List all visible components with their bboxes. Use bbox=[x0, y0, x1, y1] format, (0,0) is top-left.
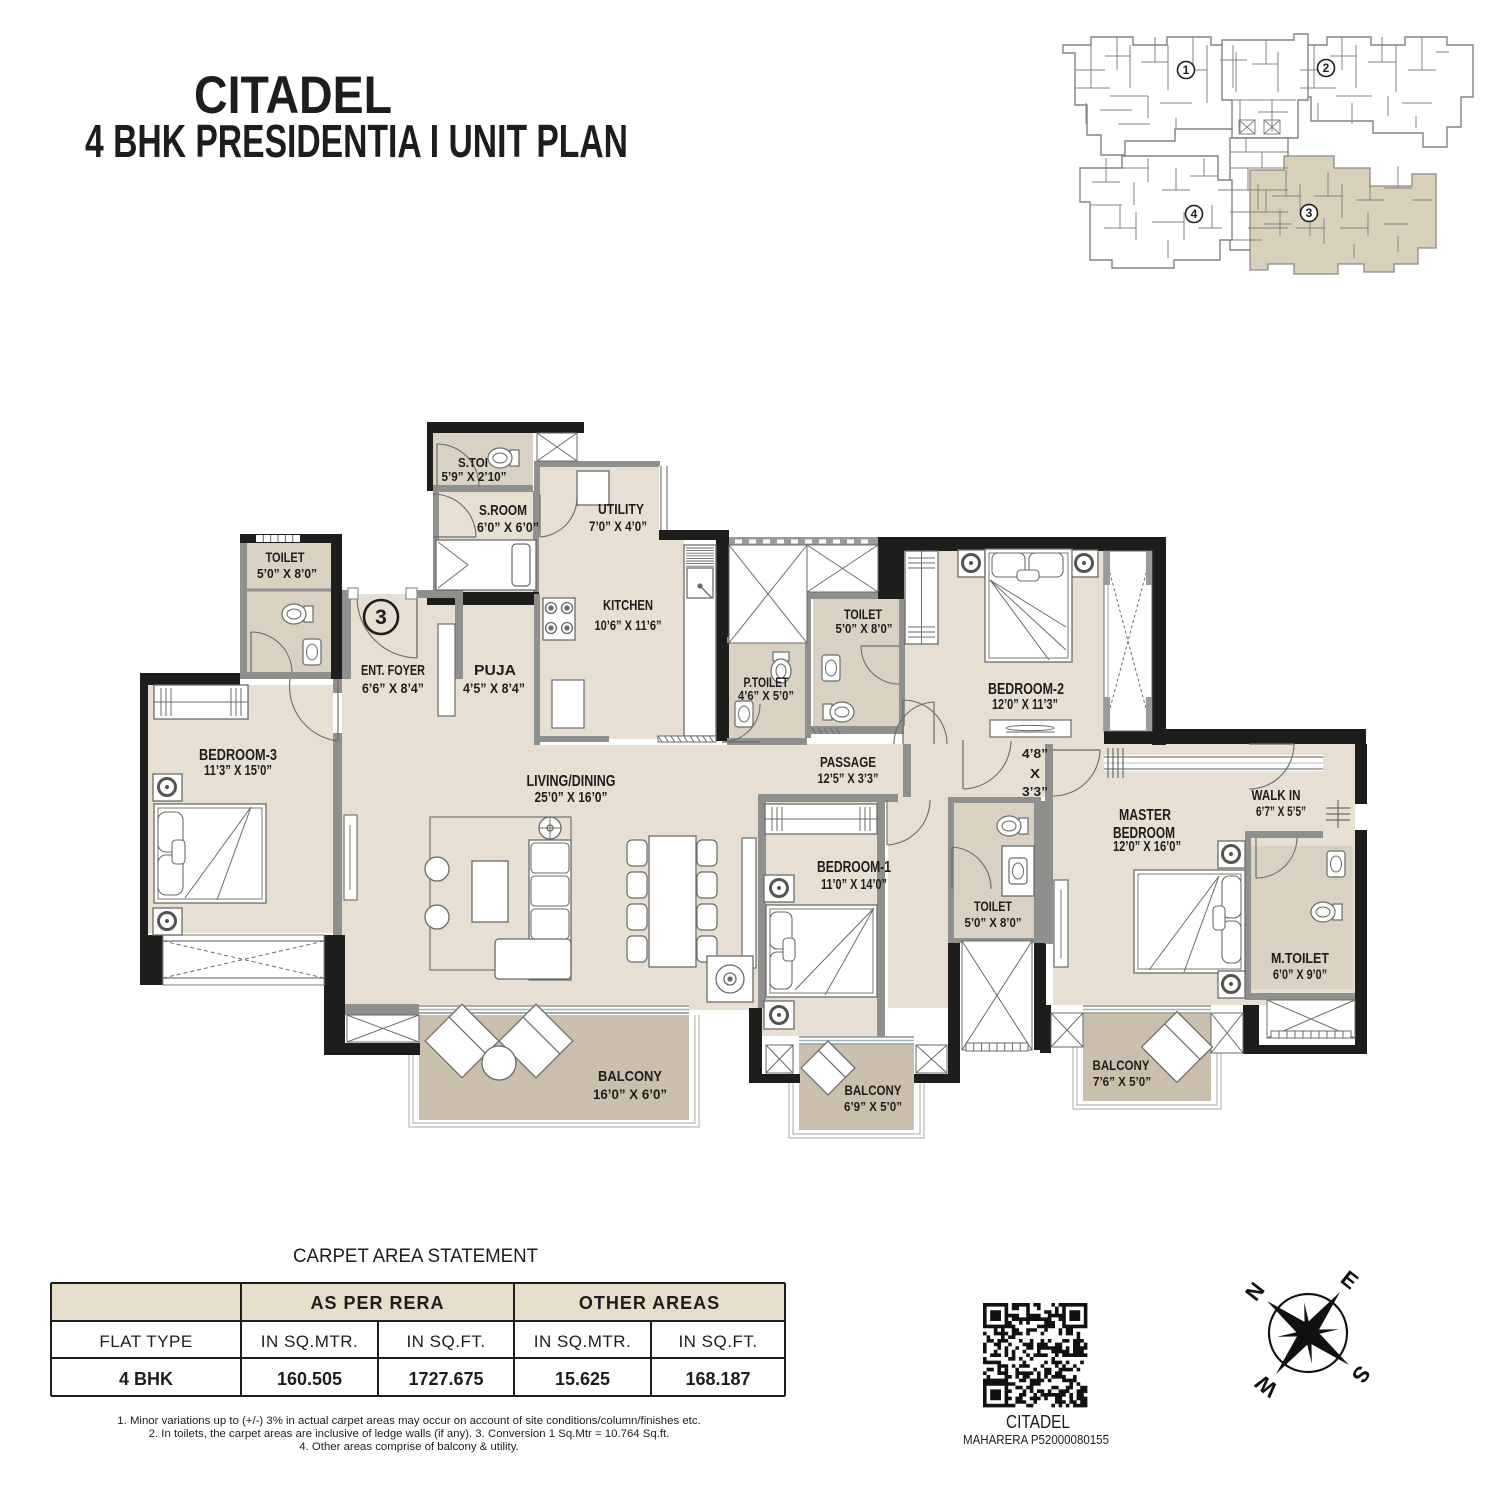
svg-text:5’0” X 8’0”: 5’0” X 8’0” bbox=[836, 622, 893, 636]
svg-text:FLAT TYPE: FLAT TYPE bbox=[99, 1332, 192, 1351]
svg-text:BALCONY: BALCONY bbox=[598, 1068, 662, 1085]
svg-text:4’8”: 4’8” bbox=[1022, 747, 1048, 761]
svg-text:CARPET AREA STATEMENT: CARPET AREA STATEMENT bbox=[293, 1246, 538, 1267]
svg-text:BEDROOM-3: BEDROOM-3 bbox=[199, 747, 277, 764]
svg-text:4. Other areas comprise of bal: 4. Other areas comprise of balcony & uti… bbox=[299, 1441, 518, 1453]
svg-text:UTILITY: UTILITY bbox=[598, 501, 644, 518]
svg-text:4’6” X 5’0”: 4’6” X 5’0” bbox=[738, 689, 794, 703]
svg-text:X: X bbox=[1030, 767, 1041, 781]
svg-text:AS PER RERA: AS PER RERA bbox=[310, 1293, 444, 1313]
svg-text:OTHER AREAS: OTHER AREAS bbox=[579, 1293, 720, 1313]
svg-text:4 BHK: 4 BHK bbox=[119, 1369, 173, 1389]
svg-text:PUJA: PUJA bbox=[474, 663, 517, 679]
svg-text:BALCONY: BALCONY bbox=[1093, 1057, 1151, 1073]
svg-text:12’0” X 16’0”: 12’0” X 16’0” bbox=[1113, 839, 1181, 855]
svg-text:6’7” X 5’5”: 6’7” X 5’5” bbox=[1256, 804, 1306, 819]
svg-text:1: 1 bbox=[1183, 63, 1190, 77]
svg-text:5’0” X 8’0”: 5’0” X 8’0” bbox=[965, 916, 1022, 930]
svg-text:CITADEL: CITADEL bbox=[1006, 1412, 1070, 1432]
svg-text:6’6” X 8’4”: 6’6” X 8’4” bbox=[362, 681, 424, 696]
svg-text:4: 4 bbox=[1191, 207, 1198, 221]
svg-text:TOILET: TOILET bbox=[844, 607, 883, 622]
svg-text:BEDROOM-1: BEDROOM-1 bbox=[817, 859, 891, 876]
svg-text:16’0” X 6’0”: 16’0” X 6’0” bbox=[593, 1086, 667, 1102]
svg-text:3: 3 bbox=[1306, 206, 1313, 220]
svg-text:ENT. FOYER: ENT. FOYER bbox=[361, 663, 425, 679]
svg-text:3’3”: 3’3” bbox=[1022, 785, 1048, 799]
svg-text:KITCHEN: KITCHEN bbox=[603, 597, 653, 614]
svg-text:11’3” X 15’0”: 11’3” X 15’0” bbox=[204, 763, 272, 779]
svg-text:7’0” X 4’0”: 7’0” X 4’0” bbox=[589, 518, 647, 534]
svg-text:S.ROOM: S.ROOM bbox=[479, 502, 527, 519]
svg-text:2: 2 bbox=[1323, 61, 1330, 75]
svg-text:WALK IN: WALK IN bbox=[1252, 788, 1301, 804]
svg-text:6’0” X 9’0”: 6’0” X 9’0” bbox=[1273, 967, 1327, 982]
svg-text:PASSAGE: PASSAGE bbox=[820, 755, 876, 771]
svg-text:15.625: 15.625 bbox=[555, 1369, 610, 1389]
svg-text:12’0” X 11’3”: 12’0” X 11’3” bbox=[992, 697, 1058, 713]
svg-text:7’6” X 5’0”: 7’6” X 5’0” bbox=[1093, 1074, 1151, 1089]
svg-text:5’0” X 8’0”: 5’0” X 8’0” bbox=[257, 566, 317, 581]
svg-text:160.505: 160.505 bbox=[277, 1369, 342, 1389]
svg-text:BEDROOM-2: BEDROOM-2 bbox=[988, 681, 1064, 698]
svg-text:4’5” X 8’4”: 4’5” X 8’4” bbox=[463, 681, 525, 696]
svg-text:4 BHK PRESIDENTIA I UNIT PLAN: 4 BHK PRESIDENTIA I UNIT PLAN bbox=[85, 115, 628, 167]
svg-text:6’9” X 5’0”: 6’9” X 5’0” bbox=[844, 1099, 902, 1114]
svg-text:IN SQ.FT.: IN SQ.FT. bbox=[406, 1332, 485, 1351]
svg-text:TOILET: TOILET bbox=[974, 899, 1013, 914]
svg-text:LIVING/DINING: LIVING/DINING bbox=[527, 773, 616, 790]
svg-text:3: 3 bbox=[375, 606, 387, 629]
svg-text:S.TOI: S.TOI bbox=[458, 455, 488, 470]
svg-text:IN SQ.FT.: IN SQ.FT. bbox=[678, 1332, 757, 1351]
svg-text:2. In toilets, the carpet area: 2. In toilets, the carpet areas are incl… bbox=[149, 1428, 670, 1440]
svg-text:P.TOILET: P.TOILET bbox=[744, 675, 790, 690]
svg-text:1727.675: 1727.675 bbox=[408, 1369, 483, 1389]
svg-text:BALCONY: BALCONY bbox=[845, 1082, 903, 1098]
svg-text:IN SQ.MTR.: IN SQ.MTR. bbox=[261, 1332, 359, 1351]
svg-text:IN SQ.MTR.: IN SQ.MTR. bbox=[534, 1332, 632, 1351]
svg-text:5’9” X 2’10”: 5’9” X 2’10” bbox=[442, 469, 507, 484]
svg-text:1. Minor variations up to (+/-: 1. Minor variations up to (+/-) 3% in ac… bbox=[117, 1415, 700, 1427]
svg-text:25’0” X 16’0”: 25’0” X 16’0” bbox=[535, 790, 608, 806]
svg-text:TOILET: TOILET bbox=[266, 549, 305, 565]
svg-text:6’0” X 6’0”: 6’0” X 6’0” bbox=[477, 519, 539, 535]
svg-text:MASTER: MASTER bbox=[1119, 807, 1171, 824]
svg-text:10’6” X 11’6”: 10’6” X 11’6” bbox=[595, 617, 662, 633]
svg-text:M.TOILET: M.TOILET bbox=[1271, 951, 1329, 967]
svg-text:168.187: 168.187 bbox=[685, 1369, 750, 1389]
svg-text:12’5” X 3’3”: 12’5” X 3’3” bbox=[818, 771, 879, 786]
svg-text:11’0” X 14’0”: 11’0” X 14’0” bbox=[821, 877, 887, 893]
svg-text:MAHARERA P52000080155: MAHARERA P52000080155 bbox=[963, 1432, 1109, 1447]
